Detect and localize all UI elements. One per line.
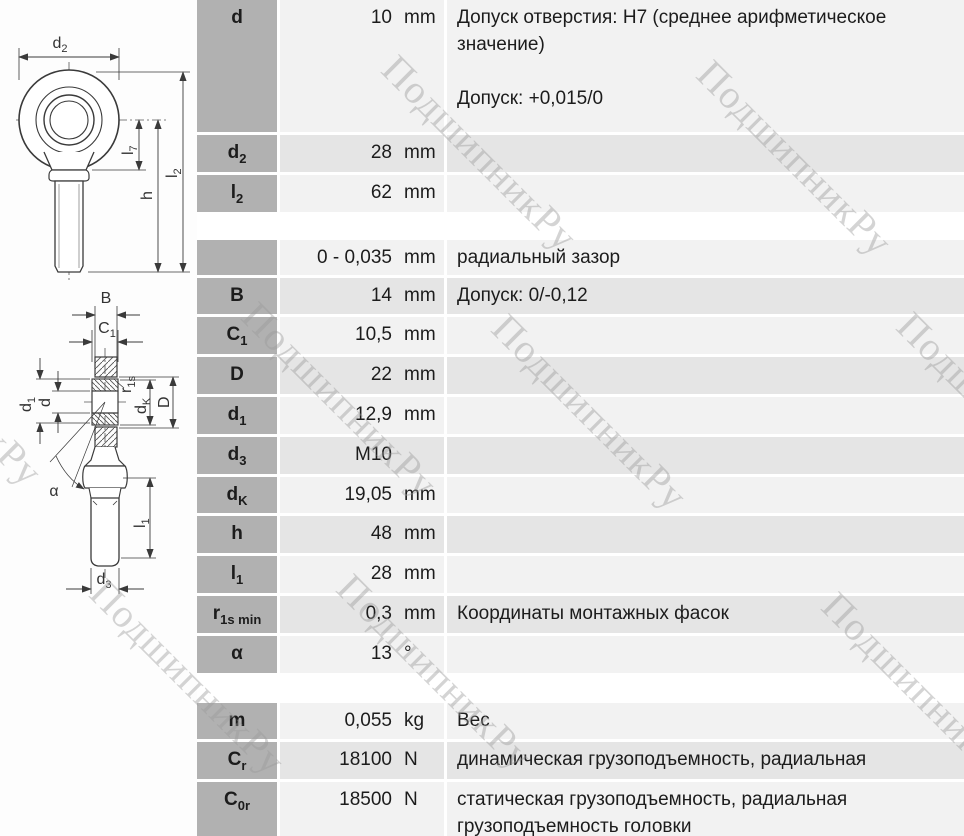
row-description xyxy=(447,357,964,394)
rod-end-front-drawing: d2 l2 h l7 xyxy=(0,0,197,290)
row-symbol: m xyxy=(197,703,280,740)
value-unit: mm xyxy=(392,244,438,271)
value-unit: mm xyxy=(392,4,438,31)
row-symbol: l1 xyxy=(197,556,280,593)
row-description xyxy=(447,477,964,514)
row-symbol: d1 xyxy=(197,397,280,434)
table-row: C0r 18500N статическая грузоподъемность,… xyxy=(197,782,964,836)
table-section: 0 - 0,035mm радиальный зазор B 14mm Допу… xyxy=(197,240,964,673)
row-description: Допуск: 0/-0,12 xyxy=(447,278,964,315)
row-description: радиальный зазор xyxy=(447,240,964,275)
row-symbol: dK xyxy=(197,477,280,514)
dim-label-d1: d1 xyxy=(18,397,38,412)
value-number: 0,3 xyxy=(284,600,392,627)
value-number: 18100 xyxy=(284,746,392,773)
value-unit: mm xyxy=(392,520,438,547)
value-unit: N xyxy=(392,746,438,773)
row-value: 28mm xyxy=(280,556,447,593)
dim-label-l2: l2 xyxy=(164,168,184,178)
value-number: 28 xyxy=(284,560,392,587)
row-value: 18100N xyxy=(280,742,447,779)
dim-label-d: d xyxy=(37,398,54,407)
row-value: 10mm xyxy=(280,0,447,132)
dim-label-l1: l1 xyxy=(132,518,152,528)
row-value: 22mm xyxy=(280,357,447,394)
row-symbol: C1 xyxy=(197,317,280,354)
dim-label-h: h xyxy=(139,191,156,200)
table-row: d1 12,9mm xyxy=(197,397,964,434)
value-unit: kg xyxy=(392,707,438,734)
datasheet-page: d2 l2 h l7 xyxy=(0,0,964,836)
row-description xyxy=(447,397,964,434)
row-description xyxy=(447,135,964,172)
row-value: 28mm xyxy=(280,135,447,172)
value-number: 0 - 0,035 xyxy=(284,244,392,271)
description-line: Вес xyxy=(457,707,956,734)
row-description xyxy=(447,175,964,212)
table-row: d2 28mm xyxy=(197,135,964,172)
row-symbol: d xyxy=(197,0,280,132)
row-symbol: d3 xyxy=(197,437,280,474)
table-section: d 10mm Допуск отверстия: H7 (среднее ари… xyxy=(197,0,964,212)
table-section: m 0,055kg Вес Cr 18100N динамическая гру… xyxy=(197,703,964,836)
table-row: 0 - 0,035mm радиальный зазор xyxy=(197,240,964,275)
row-value: 18500N xyxy=(280,782,447,836)
dim-label-r1s: r1s xyxy=(118,376,138,393)
table-row: l2 62mm xyxy=(197,175,964,212)
row-value: 13° xyxy=(280,636,447,673)
value-unit: mm xyxy=(392,282,438,309)
table-row: l1 28mm xyxy=(197,556,964,593)
value-unit: mm xyxy=(392,179,438,206)
row-symbol: l2 xyxy=(197,175,280,212)
description-line: динамическая грузоподъемность, радиальна… xyxy=(457,746,956,773)
description-line: Допуск: 0/-0,12 xyxy=(457,282,956,309)
value-number: 10,5 xyxy=(284,321,392,348)
description-line: радиальный зазор xyxy=(457,244,956,271)
description-line: статическая грузоподъемность, радиальная… xyxy=(457,786,956,836)
row-description xyxy=(447,317,964,354)
value-number: 10 xyxy=(284,4,392,31)
row-symbol: C0r xyxy=(197,782,280,836)
drawing-pane: d2 l2 h l7 xyxy=(0,0,197,836)
row-value: 10,5mm xyxy=(280,317,447,354)
row-description xyxy=(447,636,964,673)
description-line: Допуск отверстия: H7 (среднее арифметиче… xyxy=(457,4,956,58)
table-row: α 13° xyxy=(197,636,964,673)
row-description: Координаты монтажных фасок xyxy=(447,596,964,633)
value-unit: mm xyxy=(392,139,438,166)
value-unit: mm xyxy=(392,361,438,388)
value-unit: ° xyxy=(392,640,438,667)
value-unit: mm xyxy=(392,560,438,587)
table-row: d 10mm Допуск отверстия: H7 (среднее ари… xyxy=(197,0,964,132)
row-value: 12,9mm xyxy=(280,397,447,434)
row-symbol: d2 xyxy=(197,135,280,172)
table-row: B 14mm Допуск: 0/-0,12 xyxy=(197,278,964,315)
value-number: 28 xyxy=(284,139,392,166)
dim-label-alpha: α xyxy=(49,483,58,500)
table-row: dK 19,05mm xyxy=(197,477,964,514)
dim-label-D: D xyxy=(156,396,173,408)
table-row: h 48mm xyxy=(197,516,964,553)
value-unit: N xyxy=(392,786,438,813)
value-number: 19,05 xyxy=(284,481,392,508)
row-description xyxy=(447,556,964,593)
dim-label-d3: d3 xyxy=(96,571,111,591)
table-row: r1s min 0,3mm Координаты монтажных фасок xyxy=(197,596,964,633)
row-symbol: D xyxy=(197,357,280,394)
description-line xyxy=(457,58,956,85)
value-unit: mm xyxy=(392,600,438,627)
value-number: 0,055 xyxy=(284,707,392,734)
value-number: 22 xyxy=(284,361,392,388)
row-value: 14mm xyxy=(280,278,447,315)
description-line: Координаты монтажных фасок xyxy=(457,600,956,627)
table-row: d3 M10 xyxy=(197,437,964,474)
row-symbol: Cr xyxy=(197,742,280,779)
row-symbol: α xyxy=(197,636,280,673)
row-description: статическая грузоподъемность, радиальная… xyxy=(447,782,964,836)
value-number: 18500 xyxy=(284,786,392,813)
dim-label-l7: l7 xyxy=(120,145,140,155)
value-number: M10 xyxy=(284,441,392,468)
row-value: M10 xyxy=(280,437,447,474)
table-row: D 22mm xyxy=(197,357,964,394)
value-unit: mm xyxy=(392,481,438,508)
row-symbol: h xyxy=(197,516,280,553)
row-description xyxy=(447,437,964,474)
dim-label-d2: d2 xyxy=(52,35,67,55)
row-value: 62mm xyxy=(280,175,447,212)
value-number: 62 xyxy=(284,179,392,206)
value-number: 14 xyxy=(284,282,392,309)
row-symbol: B xyxy=(197,278,280,315)
value-number: 48 xyxy=(284,520,392,547)
row-value: 0,3mm xyxy=(280,596,447,633)
row-value: 48mm xyxy=(280,516,447,553)
table-row: C1 10,5mm xyxy=(197,317,964,354)
row-symbol xyxy=(197,240,280,275)
value-unit: mm xyxy=(392,321,438,348)
row-description xyxy=(447,516,964,553)
description-line: Допуск: +0,015/0 xyxy=(457,85,956,112)
dim-label-C1: C1 xyxy=(98,320,116,340)
value-number: 12,9 xyxy=(284,401,392,428)
row-description: Допуск отверстия: H7 (среднее арифметиче… xyxy=(447,0,964,132)
row-value: 0 - 0,035mm xyxy=(280,240,447,275)
table-row: Cr 18100N динамическая грузоподъемность,… xyxy=(197,742,964,779)
rod-end-section-drawing: B C1 d1 d xyxy=(0,290,197,610)
value-unit: mm xyxy=(392,401,438,428)
row-value: 0,055kg xyxy=(280,703,447,740)
value-number: 13 xyxy=(284,640,392,667)
row-symbol: r1s min xyxy=(197,596,280,633)
row-description: Вес xyxy=(447,703,964,740)
table-row: m 0,055kg Вес xyxy=(197,703,964,740)
row-value: 19,05mm xyxy=(280,477,447,514)
spec-table: d 10mm Допуск отверстия: H7 (среднее ари… xyxy=(197,0,964,836)
row-description: динамическая грузоподъемность, радиальна… xyxy=(447,742,964,779)
dim-label-B: B xyxy=(101,290,112,307)
